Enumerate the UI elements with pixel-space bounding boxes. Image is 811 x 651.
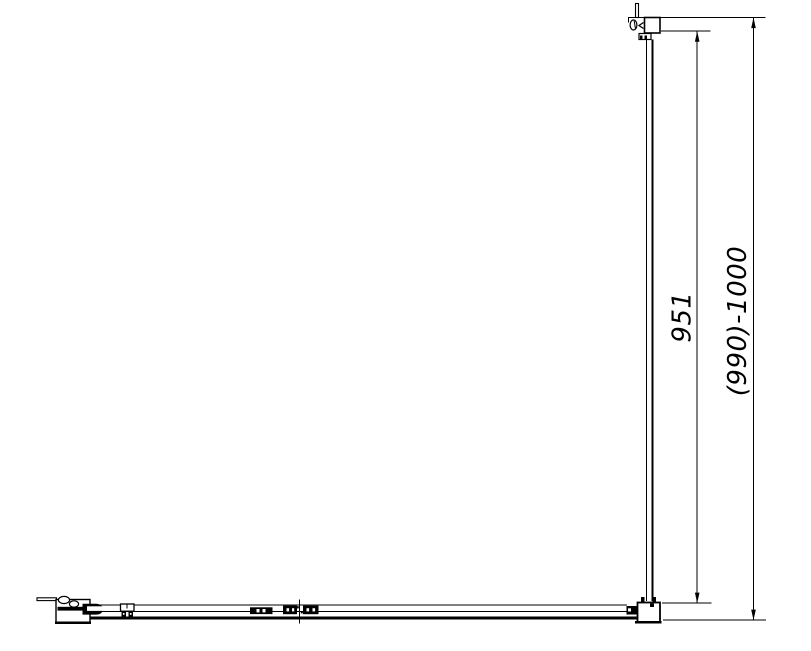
- joint-hole: [292, 608, 294, 611]
- joint-hole: [307, 608, 310, 611]
- foot-jaw-right: [645, 36, 648, 41]
- clip-hole-right: [263, 609, 266, 612]
- technical-drawing-canvas: 951 (990)-1000: [0, 0, 811, 651]
- joint-tab-bottom: [301, 611, 303, 613]
- clip-jaw-hole-left: [123, 613, 125, 615]
- clip-jaw-hole-right: [130, 613, 132, 615]
- bracket-claw-slot: [87, 606, 104, 611]
- bracket-pin: [636, 4, 639, 18]
- clip-body: [250, 607, 273, 614]
- shower-enclosure-top-view-drawing: 951 (990)-1000: [0, 0, 811, 651]
- joint-block-right: [303, 606, 319, 615]
- foot-jaw-left: [640, 36, 643, 41]
- dimension-label-951: 951: [668, 291, 698, 342]
- bracket-body: [645, 18, 661, 34]
- bracket-bar: [58, 607, 83, 611]
- bracket-screw-head-inner: [69, 601, 78, 607]
- panel-clip-middle: [250, 607, 273, 614]
- corner-block-body: [638, 603, 661, 623]
- dimension-label-overall: (990)-1000: [723, 246, 753, 396]
- bracket-pin: [37, 598, 57, 601]
- corner-block-screw: [650, 604, 654, 608]
- joint-hole: [313, 608, 316, 611]
- fitting-slot: [628, 608, 631, 611]
- joint-hole: [287, 608, 290, 611]
- clip-hole-left: [257, 609, 260, 612]
- bracket-screw-head-outer: [58, 596, 69, 603]
- joint-tab-top: [297, 606, 299, 608]
- joint-block-left: [283, 606, 297, 615]
